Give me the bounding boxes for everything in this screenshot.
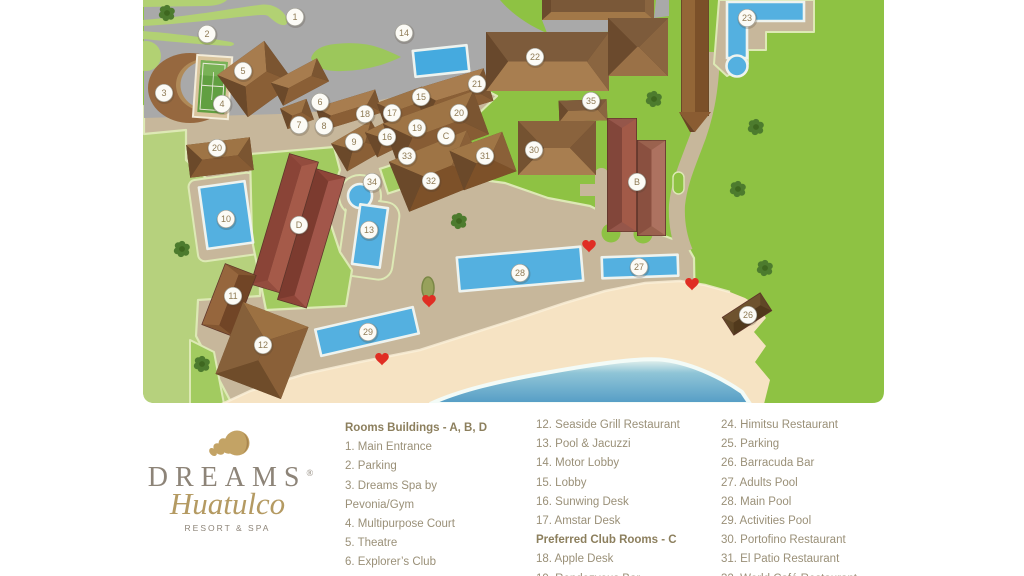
svg-text:30: 30	[529, 145, 539, 155]
svg-text:14: 14	[399, 28, 409, 38]
svg-text:18: 18	[360, 109, 370, 119]
svg-text:28: 28	[515, 268, 525, 278]
svg-text:D: D	[296, 220, 303, 230]
svg-text:C: C	[443, 131, 450, 141]
svg-text:4: 4	[219, 99, 224, 109]
svg-text:19: 19	[412, 123, 422, 133]
svg-text:20: 20	[212, 143, 222, 153]
svg-text:31: 31	[480, 151, 490, 161]
svg-text:27: 27	[634, 262, 644, 272]
svg-text:15: 15	[416, 92, 426, 102]
svg-text:34: 34	[367, 177, 377, 187]
svg-text:12: 12	[258, 340, 268, 350]
svg-text:2: 2	[204, 29, 209, 39]
svg-text:33: 33	[402, 151, 412, 161]
svg-text:1: 1	[292, 12, 297, 22]
svg-text:9: 9	[351, 137, 356, 147]
svg-text:5: 5	[240, 66, 245, 76]
svg-text:29: 29	[363, 327, 373, 337]
svg-text:17: 17	[387, 108, 397, 118]
svg-text:6: 6	[317, 97, 322, 107]
svg-text:16: 16	[382, 132, 392, 142]
svg-text:26: 26	[743, 310, 753, 320]
svg-text:3: 3	[161, 88, 166, 98]
svg-text:11: 11	[228, 291, 237, 301]
svg-text:21: 21	[472, 79, 482, 89]
svg-text:B: B	[634, 177, 640, 187]
svg-text:35: 35	[586, 96, 596, 106]
svg-text:8: 8	[321, 121, 326, 131]
svg-text:10: 10	[221, 214, 231, 224]
svg-text:23: 23	[742, 13, 752, 23]
svg-text:13: 13	[364, 225, 374, 235]
svg-text:20: 20	[454, 108, 464, 118]
svg-text:32: 32	[426, 176, 436, 186]
svg-text:22: 22	[530, 52, 540, 62]
svg-text:7: 7	[296, 120, 301, 130]
